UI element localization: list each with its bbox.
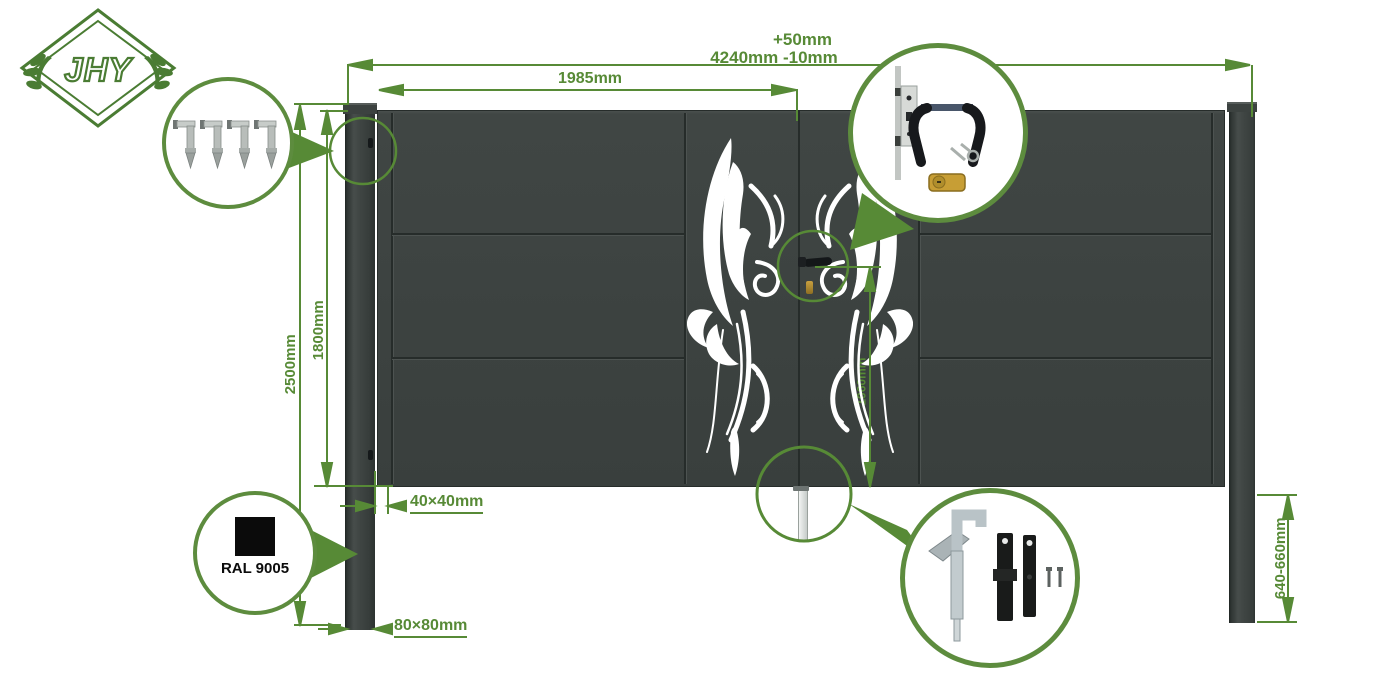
gate-drop-bolt <box>798 489 808 541</box>
mounting-plate-icon <box>1023 535 1036 617</box>
upper-hinge-dot <box>368 138 373 148</box>
gate-drop-bolt-guide <box>793 486 809 491</box>
ral-color-label: RAL 9005 <box>197 560 313 577</box>
left-leaf-stile-groove <box>391 113 393 484</box>
drop-bolt-callout <box>900 488 1080 668</box>
arrowhead <box>374 624 392 634</box>
lower-hinge-dot <box>368 450 373 460</box>
color-swatch-callout: RAL 9005 <box>193 491 317 615</box>
left-leaf-groove-lower <box>392 357 684 359</box>
arrowhead <box>295 602 305 626</box>
arrowhead <box>1226 60 1250 70</box>
drop-bolt-set <box>905 493 1075 663</box>
arrowhead <box>772 85 796 95</box>
color-swatch-icon <box>235 517 275 556</box>
total-height-label: 2500mm <box>283 329 300 399</box>
frame-profile-label: 40×40mm <box>410 493 483 514</box>
right-leaf-stile-groove <box>1211 113 1213 484</box>
arrowhead <box>379 85 403 95</box>
overall-width-label: 4240mm -10mm <box>690 49 858 68</box>
screw-icon <box>1046 569 1063 587</box>
post-profile-label: 80×80mm <box>394 617 467 638</box>
mounting-plate-icon <box>993 533 1017 621</box>
arrowhead <box>322 463 332 487</box>
arrowhead <box>348 60 372 70</box>
brand-logo: JHY <box>12 4 184 136</box>
hinge-set <box>167 82 289 204</box>
gate-cylinder <box>806 281 813 294</box>
arrowhead <box>322 110 332 134</box>
right-leaf-groove-upper <box>920 233 1212 235</box>
right-leaf-groove-lower <box>920 357 1212 359</box>
leaf-width-label: 1985mm <box>545 70 635 88</box>
arrowhead <box>295 105 305 129</box>
gate-technical-diagram: +50mm 4240mm -10mm 1985mm 2500mm 1800mm … <box>0 0 1400 700</box>
ornament-left <box>687 134 799 479</box>
dim-overall-width <box>348 60 1252 117</box>
lock-callout <box>848 43 1028 223</box>
hinge-icon <box>254 120 277 168</box>
right-post-cap <box>1227 102 1257 112</box>
gate-height-label: 1800mm <box>311 295 328 365</box>
left-leaf-decor-groove <box>684 113 686 484</box>
lock-set <box>853 48 1023 218</box>
logo-leaf-left <box>22 52 52 91</box>
arrowhead <box>388 501 406 511</box>
hinge-icon <box>200 120 223 168</box>
left-leaf-groove-upper <box>392 233 684 235</box>
drop-bolt-icon <box>929 515 981 641</box>
left-post-cap <box>343 103 377 114</box>
handle-pair-icon <box>914 104 981 162</box>
post-embed-label: 640-660mm <box>1273 513 1290 603</box>
euro-cylinder-icon <box>929 174 965 191</box>
right-post <box>1229 103 1255 623</box>
logo-text: JHY <box>64 51 133 88</box>
hinge-icon <box>227 120 250 168</box>
logo-leaf-right <box>144 52 174 91</box>
width-tolerance-label: +50mm <box>755 31 850 50</box>
left-post <box>345 104 375 630</box>
gate-handle-base <box>798 257 806 267</box>
